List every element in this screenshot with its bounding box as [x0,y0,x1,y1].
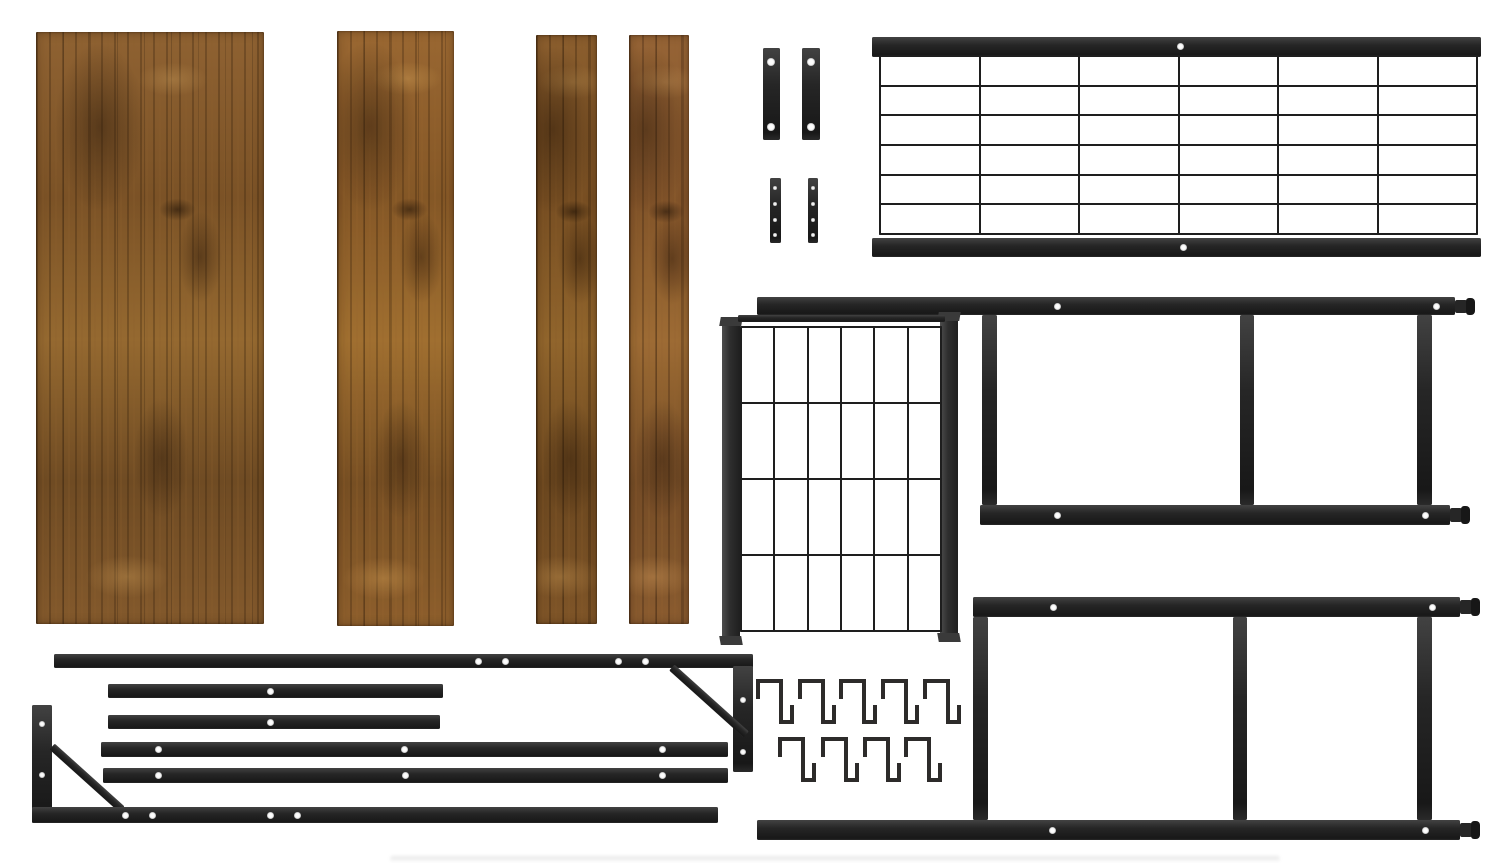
frame1-top-rail-peg [1455,300,1467,313]
frame1-right-upright [1417,315,1432,505]
screw-hole [807,123,815,131]
screw-hole [811,186,815,190]
short-rail-2 [108,715,440,729]
screw-hole [773,186,777,190]
short-rail-1 [108,684,443,698]
screw-hole [1422,827,1429,834]
screw-hole [401,746,408,753]
furniture-parts-flatlay-photo: Flat lay of unassembled furniture kit pa… [0,0,1500,863]
grid-wire-horizontal [740,630,942,632]
screw-hole [1429,604,1436,611]
screw-hole [1049,827,1056,834]
grid-wire-horizontal [879,85,1478,87]
center-grid-left-bar [722,322,740,640]
grid-wire-horizontal [740,402,942,404]
screw-hole [811,233,815,237]
screw-hole [122,812,129,819]
s-hook-3 [838,677,878,730]
frame1-bottom-rail [980,505,1450,525]
frame1-top-rail [757,297,1455,315]
grid-wire-horizontal [740,478,942,480]
screw-hole [502,658,509,665]
grid-wire-horizontal [879,174,1478,176]
flat-plate-1 [770,178,781,243]
s-hook-4 [880,677,920,730]
screw-hole [767,58,775,66]
screw-hole [811,218,815,222]
frame1-middle-upright [1240,315,1254,505]
grid-wire-horizontal [740,326,942,328]
screw-hole [659,746,666,753]
hinge-bracket-1 [763,48,780,140]
screw-hole [149,812,156,819]
screw-hole [1050,604,1057,611]
center-grid-right-bar [940,317,958,637]
screw-hole [1422,512,1429,519]
flat-plate-2 [808,178,818,243]
screw-hole [1054,512,1061,519]
support-rail-top [54,654,753,668]
screw-hole [155,772,162,779]
frame2-bottom-rail [757,820,1460,840]
frame1-left-upright [982,315,997,505]
long-rail-1 [101,742,728,757]
screw-hole [767,123,775,131]
s-hook-8 [862,735,902,788]
frame2-middle-upright [1233,617,1247,820]
top-grid-frame-bottom-bar [872,238,1481,257]
frame2-top-rail [973,597,1460,617]
grid-wire-horizontal [879,203,1478,205]
frame2-left-upright [973,617,988,820]
s-hook-9 [903,735,943,788]
screw-hole [659,772,666,779]
grid-wire-horizontal [879,114,1478,116]
screw-hole [267,719,274,726]
top-grid-frame-top-bar [872,37,1481,57]
s-hook-2 [797,677,837,730]
screw-hole [1054,303,1061,310]
screw-hole [773,233,777,237]
wood-slat-1 [536,35,597,624]
screw-hole [811,202,815,206]
screw-hole [267,812,274,819]
screw-hole [740,749,746,755]
support-rail-bottom-end-drop [32,705,52,823]
wood-panel-medium [337,31,454,626]
long-rail-2 [103,768,728,783]
center-grid-mesh [740,326,942,632]
screw-hole [1177,43,1184,50]
s-hook-6 [777,735,817,788]
frame1-bottom-rail-peg [1450,508,1462,522]
screw-hole [615,658,622,665]
wood-slat-2 [629,35,689,624]
frame2-right-upright [1417,617,1432,820]
screw-hole [294,812,301,819]
grid-wire-horizontal [879,144,1478,146]
support-rail-bottom [32,807,718,823]
frame2-top-rail-peg [1460,600,1472,614]
screw-hole [267,688,274,695]
grid-wire-horizontal [740,554,942,556]
screw-hole [740,697,746,703]
grid-wire-horizontal [879,233,1478,235]
screw-hole [39,772,45,778]
wood-panel-large [36,32,264,624]
center-grid-top-bar [738,315,945,322]
grid-wire-horizontal [879,55,1478,57]
screw-hole [402,772,409,779]
screw-hole [155,746,162,753]
frame2-bottom-rail-peg [1460,823,1472,837]
screw-hole [773,202,777,206]
screw-hole [1180,244,1187,251]
s-hook-1 [755,677,795,730]
screw-hole [475,658,482,665]
s-hook-7 [820,735,860,788]
s-hook-5 [922,677,962,730]
screw-hole [39,721,45,727]
screw-hole [1433,303,1440,310]
hinge-bracket-2 [802,48,820,140]
top-grid-mesh [879,55,1478,235]
screw-hole [642,658,649,665]
screw-hole [807,58,815,66]
floor-shadow [390,856,1280,862]
screw-hole [773,218,777,222]
